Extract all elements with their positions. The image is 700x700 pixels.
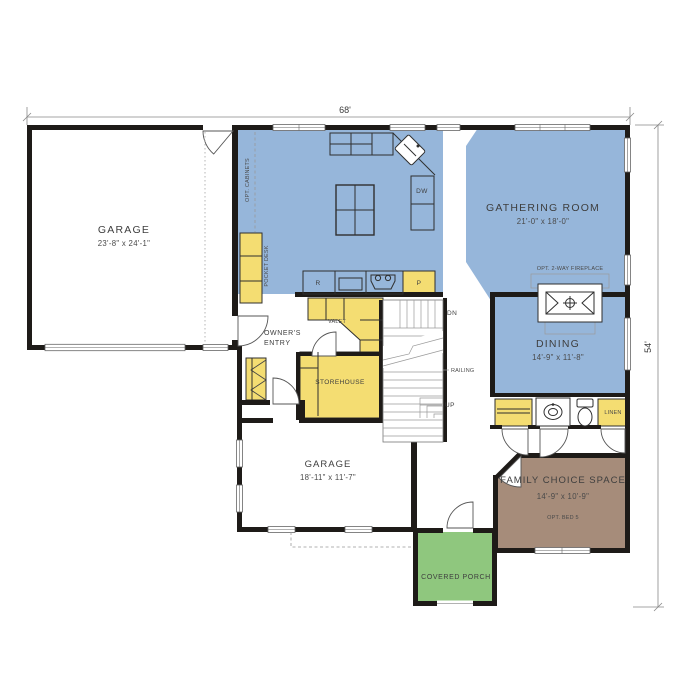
window — [625, 318, 631, 370]
window — [268, 527, 295, 533]
garage-door — [45, 344, 185, 350]
dining-size: 14'-9" x 11'-8" — [532, 353, 584, 362]
porch-opening — [437, 601, 473, 608]
garage-main-size: 23'-8" x 24'-1" — [98, 239, 150, 248]
dishwasher-label: DW — [416, 188, 428, 195]
window — [273, 125, 325, 131]
opt-cabinets-label: OPT. CABINETS — [245, 158, 251, 202]
window — [345, 527, 372, 533]
linen-label: LINEN — [604, 410, 621, 416]
family-choice-option: OPT. BED 5 — [547, 515, 579, 521]
door-arc — [203, 131, 233, 154]
window — [515, 125, 590, 131]
door-arc — [540, 429, 568, 457]
window — [237, 485, 243, 512]
floor-plan: 68' 54' GARAGE 23'-8" x 24'-1" GATHERING… — [0, 0, 700, 700]
pocket-desk-label: POCKET DESK — [264, 245, 270, 286]
door-arc — [601, 429, 625, 453]
pocket-desk-cabinet — [240, 233, 262, 303]
family-choice-size: 14'-9" x 10'-9" — [537, 492, 589, 501]
pantry-label: P — [417, 280, 422, 287]
stairs — [383, 300, 443, 442]
family-choice-label: FAMILY CHOICE SPACE — [500, 475, 626, 486]
window — [203, 345, 228, 351]
garage-rear-size: 18'-11" x 11'-7" — [300, 473, 356, 482]
door-arc — [273, 378, 299, 404]
gathering-room-label: GATHERING ROOM — [486, 202, 600, 214]
gathering-room-size: 21'-0" x 18'-0" — [517, 217, 569, 226]
down-label: DN — [447, 310, 457, 317]
floor-plan-svg: 68' 54' GARAGE 23'-8" x 24'-1" GATHERING… — [0, 0, 700, 700]
covered-porch-label: COVERED PORCH — [421, 574, 491, 581]
window — [535, 548, 590, 554]
door-arc — [502, 429, 528, 455]
height-dimension: 54' — [643, 341, 653, 353]
vanity-sink — [536, 398, 570, 426]
toilet — [577, 399, 593, 426]
owners-entry-label-2: ENTRY — [264, 340, 291, 347]
opt-outline — [291, 532, 413, 547]
up-label: UP — [445, 402, 455, 409]
garage-main-label: GARAGE — [98, 224, 150, 236]
fireplace-label: OPT. 2-WAY FIREPLACE — [537, 266, 604, 272]
window — [625, 255, 631, 285]
window — [625, 138, 631, 172]
storehouse-label: STOREHOUSE — [315, 379, 365, 386]
range-label: R — [315, 280, 320, 287]
window — [390, 125, 425, 131]
railing-label: RAILING — [451, 368, 474, 374]
garage-rear-label: GARAGE — [305, 459, 352, 470]
window — [237, 440, 243, 467]
door-arc — [447, 502, 473, 528]
width-dimension: 68' — [339, 105, 351, 115]
window — [437, 125, 460, 131]
kitchen-island — [336, 185, 374, 235]
owners-entry-label-1: OWNER'S — [264, 330, 301, 337]
covered-porch-area — [418, 532, 492, 604]
door-arc — [312, 332, 336, 356]
dining-label: DINING — [536, 338, 580, 350]
valet-label: VALET — [328, 319, 346, 325]
